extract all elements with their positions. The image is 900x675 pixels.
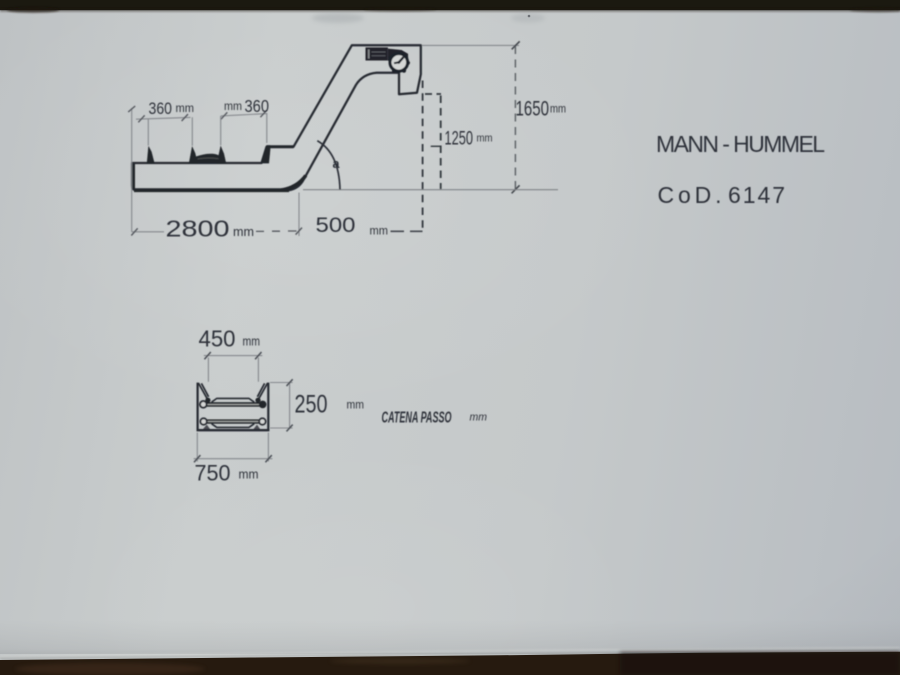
svg-text:mm: mm [224, 99, 242, 113]
svg-text:360: 360 [149, 100, 173, 118]
svg-text:1250: 1250 [445, 129, 474, 150]
svg-text:250: 250 [295, 391, 328, 419]
svg-text:6147: 6147 [728, 182, 785, 208]
svg-text:500: 500 [316, 214, 356, 237]
svg-text:mm: mm [176, 101, 195, 115]
svg-text:mm: mm [347, 398, 365, 412]
svg-text:CATENA PASSO: CATENA PASSO [382, 410, 452, 427]
svg-text:mm: mm [239, 468, 259, 482]
svg-text:mm: mm [370, 224, 389, 238]
svg-text:MANN - HUMMEL: MANN - HUMMEL [656, 131, 826, 157]
svg-text:360: 360 [245, 96, 270, 116]
svg-text:450: 450 [199, 326, 236, 352]
svg-text:750: 750 [195, 461, 231, 486]
svg-text:mm: mm [470, 412, 488, 424]
svg-text:mm: mm [233, 224, 254, 239]
svg-text:mm: mm [550, 104, 566, 116]
svg-text:2800: 2800 [166, 216, 230, 242]
svg-text:mm: mm [243, 334, 261, 349]
svg-text:mm: mm [477, 133, 493, 145]
svg-text:CoD.: CoD. [658, 182, 722, 208]
svg-text:a: a [333, 157, 341, 171]
svg-text:1650: 1650 [516, 97, 550, 121]
